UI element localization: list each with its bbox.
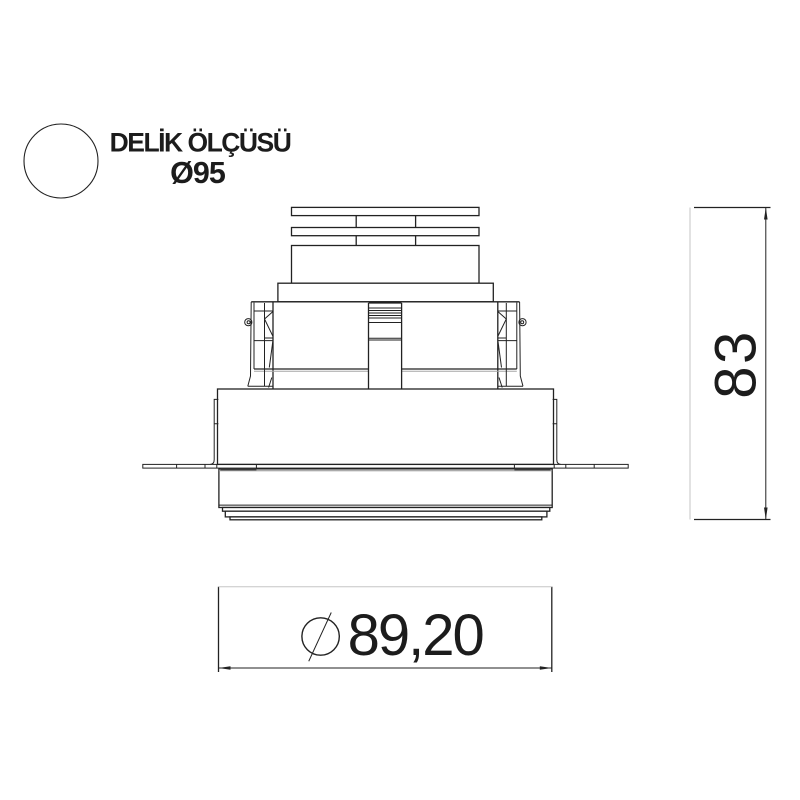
svg-text:Ø95: Ø95 — [170, 156, 226, 190]
svg-text:89,20: 89,20 — [348, 603, 483, 668]
svg-text:83: 83 — [704, 329, 769, 399]
svg-text:DELİK ÖLÇÜSÜ: DELİK ÖLÇÜSÜ — [110, 128, 291, 158]
